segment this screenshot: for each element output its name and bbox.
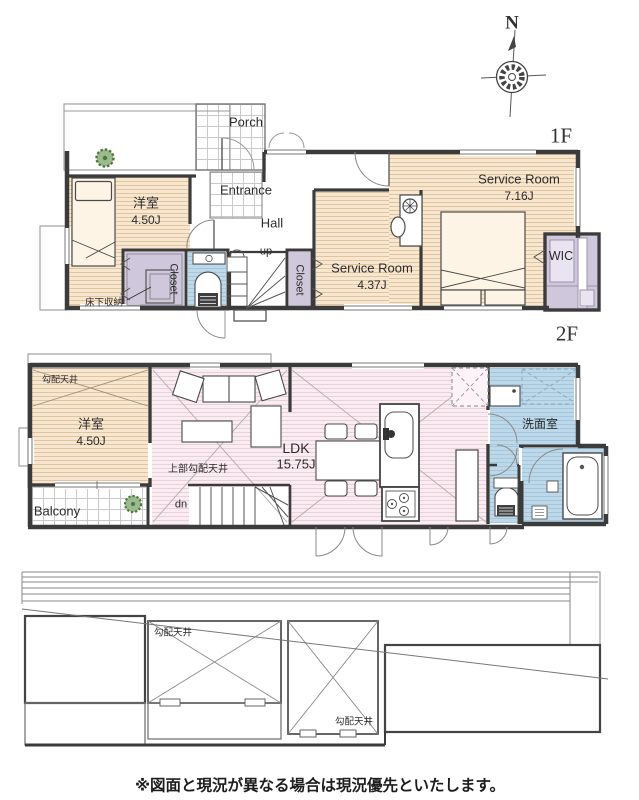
- floor1-label: 1F: [550, 126, 572, 147]
- hall-label: Hall: [261, 217, 283, 230]
- ldk-name-label: LDK: [282, 441, 309, 455]
- f2-western-room-size: 4.50J: [76, 435, 105, 447]
- f2-washroom-floor: [490, 368, 578, 446]
- f2-western-room-name: 洋室: [78, 418, 104, 431]
- footer-disclaimer: ※図面と現況が異なる場合は現況優先といたします。: [135, 778, 505, 794]
- f1-western-room-floor: [69, 177, 190, 252]
- ldk-size-label: 15.75J: [276, 458, 315, 471]
- wic-label: WIC: [549, 250, 573, 263]
- roof-slope-line: [22, 609, 608, 679]
- entrance-label: Entrance: [220, 184, 272, 197]
- stairs-up-label: up: [260, 247, 272, 258]
- f2-stairs-floor: [189, 487, 288, 525]
- f1-closet-left-label: Closet: [168, 263, 179, 294]
- upper-sloped-ceiling-label: 上部勾配天井: [168, 465, 228, 475]
- f1-closet-right-label: Closet: [294, 264, 305, 295]
- f1-service-room-large-size: 7.16J: [504, 190, 533, 202]
- f2-sloped-ceiling-label: 勾配天井: [42, 376, 78, 385]
- f1-toilet-floor: [188, 252, 226, 308]
- f1-western-room-name: 洋室: [133, 197, 159, 210]
- roof-sloped-ceiling-right-label: 勾配天井: [335, 717, 373, 727]
- f1-service-room-small-name: Service Room: [331, 262, 413, 275]
- balcony-label: Balcony: [34, 505, 80, 518]
- roof-ridge-lines: [22, 572, 600, 645]
- f1-service-room-small-size: 4.37J: [357, 279, 386, 291]
- tree-icon-1f: [97, 150, 114, 167]
- f1-western-room-size: 4.50J: [131, 214, 160, 226]
- washroom-label: 洗面室: [522, 418, 558, 430]
- f2-toilet-floor: [490, 446, 519, 523]
- compass-north-label: N: [505, 14, 519, 33]
- stairs-down-label: dn: [175, 500, 187, 511]
- f1-service-room-large-name: Service Room: [478, 173, 560, 186]
- f1-wic-floor: [547, 236, 597, 309]
- f1-stairs-floor: [230, 252, 285, 308]
- roof-rooms: [25, 616, 600, 745]
- compass-icon: [481, 30, 546, 117]
- porch-label: Porch: [229, 116, 263, 129]
- underfloor-storage-label: 床下収納: [85, 298, 123, 308]
- floor2-label: 2F: [556, 324, 578, 345]
- f2-bathroom-floor: [522, 448, 604, 522]
- floorplan-page: N 1F 2F Porch Entrance Hall up 洋室 4.50J …: [0, 0, 639, 800]
- roof-sloped-ceiling-left-label: 勾配天井: [154, 628, 192, 638]
